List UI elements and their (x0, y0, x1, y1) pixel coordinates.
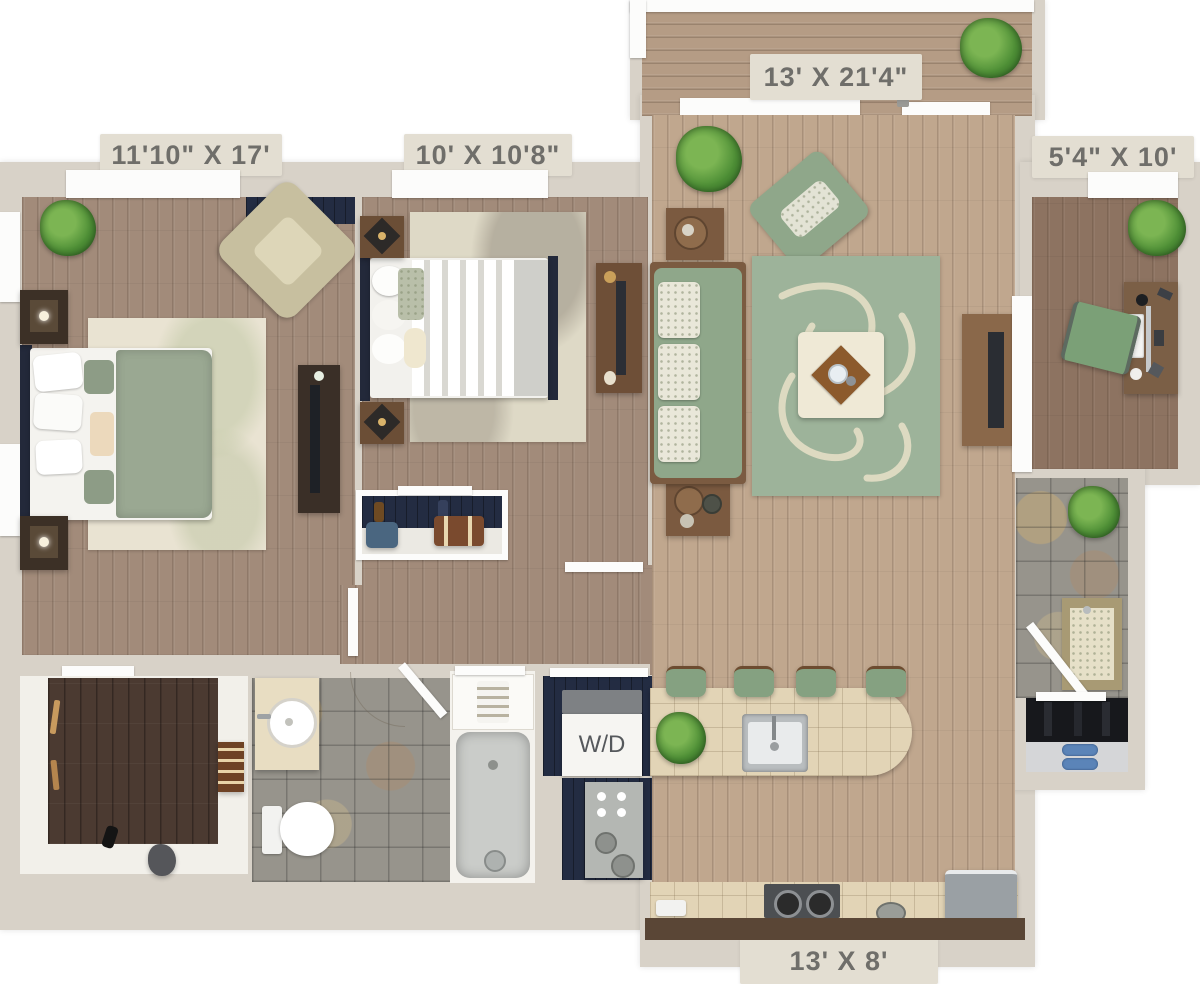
desk-mouse (1130, 368, 1142, 380)
walkin-closet-door (62, 666, 134, 676)
balcony-railing-left (630, 0, 646, 58)
hanging-coat-2 (1074, 702, 1082, 736)
pyramid-lamp-top (378, 232, 386, 240)
toilet-tank (262, 806, 282, 854)
bedroom-middle-door (565, 562, 643, 572)
blue-shoes-2 (1062, 758, 1098, 770)
closet-pouf (148, 844, 176, 876)
bedroom-left-accent-pillow (84, 360, 114, 394)
den-plant (1128, 200, 1186, 256)
kitchen-sink (742, 714, 808, 772)
hanging-coat (1044, 702, 1052, 736)
refrigerator (945, 870, 1017, 922)
hanging-coat-3 (1102, 702, 1110, 736)
bedroom-left-window (66, 170, 240, 198)
bar-stool-4 (866, 666, 906, 697)
bedroom-left-pillow-2 (33, 392, 83, 431)
kitchen-dimension-label: 13' X 8' (740, 938, 938, 984)
appliance-dot (597, 792, 606, 801)
balcony-railing (630, 0, 1034, 12)
bathtub (456, 732, 530, 878)
pyramid-lamp-top-2 (378, 418, 386, 426)
laundry-closet-door (550, 668, 648, 677)
appliance-dot-4 (617, 808, 626, 817)
kitchen-sink-drain (770, 742, 779, 751)
bedroom-left-lumbar-pillow (90, 412, 114, 456)
sofa-cushion-2 (658, 344, 700, 400)
table-tray-2 (674, 486, 704, 516)
entry-closet-shelf (1026, 742, 1128, 772)
ottoman (798, 332, 884, 418)
closet-bench (218, 742, 244, 792)
sofa-cushion-3 (658, 406, 700, 462)
tub-drain (488, 760, 498, 770)
entry-plant (1068, 486, 1120, 538)
closet-trunk (434, 516, 484, 546)
bedroom-middle-duvet (412, 260, 514, 396)
toilet-bowl (280, 802, 334, 856)
appliance-dot-3 (597, 808, 606, 817)
linen-closet-door (455, 666, 525, 675)
monitor-mount (1154, 330, 1164, 346)
table-cup (680, 514, 694, 528)
living-room-plant (676, 126, 742, 192)
closet-shoes (374, 502, 384, 522)
balcony-dimension-label: 13' X 21'4" (750, 54, 922, 100)
sink-drain (285, 718, 293, 726)
tray-dish-2 (846, 376, 856, 386)
bedroom-middle-footboard (548, 256, 558, 400)
floor-plan: 11'10" X 17' 10' X 10'8" 13' X 21'4" 5'4… (0, 0, 1200, 984)
side-table-2 (666, 478, 730, 536)
blue-shoes (1062, 744, 1098, 756)
lamp-glow-2 (39, 537, 49, 547)
washer-dryer-top (562, 690, 642, 714)
closet-suitcase (366, 522, 398, 548)
kitchen-island-plant (656, 712, 706, 764)
bar-stool-3 (796, 666, 836, 697)
tray-cup (682, 224, 694, 236)
bedroom-middle-headboard (360, 255, 370, 401)
counter-appliance (656, 900, 686, 916)
bedroom-left-side-window (0, 212, 20, 302)
bedroom-left-door (348, 588, 358, 656)
sink-faucet (257, 714, 271, 719)
table-bowl (702, 494, 722, 514)
bedroom-middle-accent-pillow (398, 268, 424, 320)
lamp-glow (39, 311, 49, 321)
kitchen-cabinet-edge (645, 918, 1025, 940)
doormat-center (1070, 608, 1114, 680)
den-doorway (1012, 296, 1032, 472)
bedroom-middle-duvet-edge (514, 260, 548, 396)
bedroom-middle-nightstand-2 (360, 402, 404, 444)
bedroom-left-pillow-3 (35, 439, 83, 475)
den-window (1088, 172, 1178, 198)
stove-burner-2 (806, 890, 834, 918)
bar-stool-2 (734, 666, 774, 697)
desk-notebook (1157, 287, 1173, 300)
bedroom-left-plant (40, 200, 96, 256)
console-lamp (604, 271, 616, 283)
washer-dryer-unit: W/D (562, 714, 642, 776)
entry-door-handle (1083, 606, 1091, 614)
appliance-knob-2 (611, 854, 635, 878)
bedroom-middle-window (392, 170, 548, 198)
utility-appliance (585, 782, 643, 878)
bedroom-middle-closet-door (398, 486, 472, 495)
desk-monitor (1146, 306, 1151, 372)
balcony-plant (960, 18, 1022, 78)
linen-shelf (452, 674, 534, 730)
kitchen-faucet (772, 716, 776, 740)
bedroom-left-nightstand-2 (20, 516, 68, 570)
walkin-closet-floor (48, 678, 218, 844)
stove-burner (774, 890, 802, 918)
sliding-door-panel (680, 98, 860, 116)
sliding-door-panel-2 (902, 102, 990, 116)
side-table (666, 208, 724, 260)
desk-headphones (1136, 294, 1148, 306)
living-tv (988, 332, 1004, 428)
entry-closet-interior (1026, 698, 1128, 742)
bedroom-middle-bolster (404, 328, 426, 368)
bar-stool (666, 666, 706, 697)
tub-faucet (484, 850, 506, 872)
bedroom-middle-nightstand (360, 216, 404, 258)
kitchen-stove (764, 884, 840, 918)
console-flower (314, 371, 324, 381)
bedroom-middle-tv (616, 281, 626, 375)
bedroom-left-tv (310, 385, 320, 493)
bedroom-left-blanket (116, 350, 212, 518)
bedroom-middle-pillow-3 (372, 334, 406, 364)
sofa-cushion (658, 282, 700, 338)
entry-closet-door (1036, 692, 1106, 701)
bedroom-left-accent-pillow-2 (84, 470, 114, 504)
bedroom-left-nightstand (20, 290, 68, 344)
appliance-knob (595, 832, 617, 854)
tray-dish (828, 364, 848, 384)
console-vase (604, 371, 616, 385)
sliding-door-handle (897, 99, 909, 107)
living-tv-console (962, 314, 1014, 446)
towel-stack (477, 681, 509, 723)
bedroom-middle-media-console (596, 263, 642, 393)
appliance-dot-2 (617, 792, 626, 801)
bedroom-left-media-console (298, 365, 340, 513)
bedroom-left-pillow (32, 352, 84, 393)
bathroom-vanity (255, 678, 319, 770)
bedroom-left-side-window-2 (0, 444, 20, 536)
